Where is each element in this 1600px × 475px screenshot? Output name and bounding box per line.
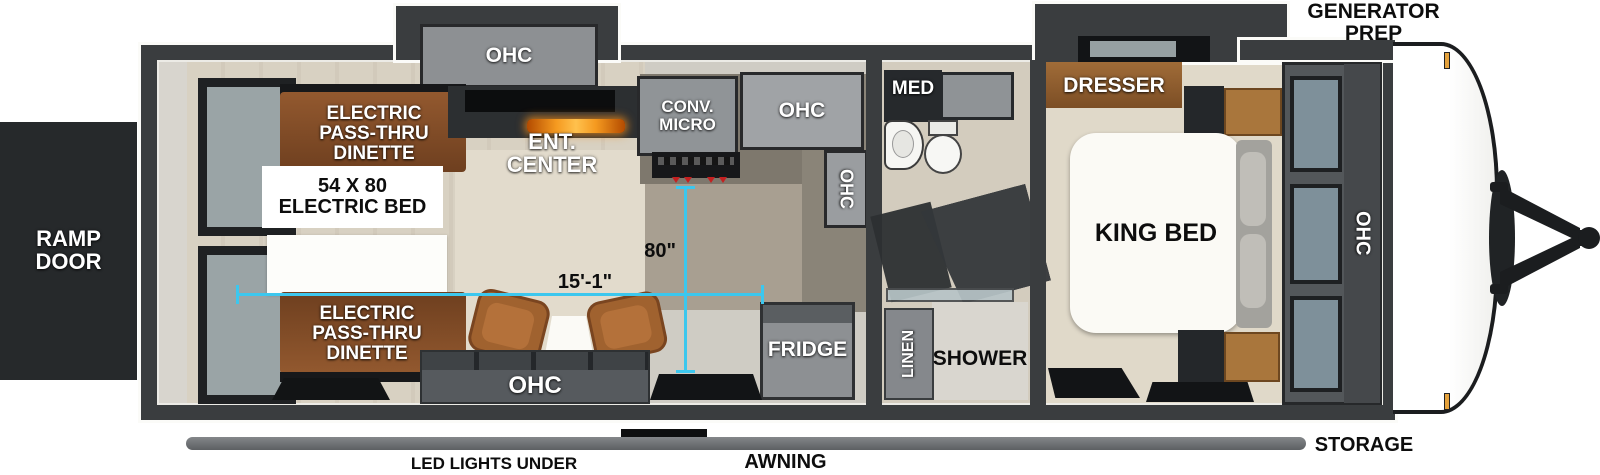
bedroom-mat-right	[1146, 382, 1254, 402]
fridge-label: FRIDGE	[760, 338, 855, 362]
led-lights-label: LED LIGHTS UNDER AWNING	[384, 454, 604, 475]
med-cabinet-front	[940, 72, 1014, 120]
wardrobe-cab-bottom	[1224, 332, 1280, 382]
shower-label: SHOWER	[928, 347, 1032, 371]
dim-width-label: 15'-1"	[528, 271, 642, 294]
kitchen-ohc-corner-label: OHC	[836, 169, 857, 209]
burner-indicator-3	[707, 177, 715, 183]
king-bed-label: KING BED	[1070, 219, 1242, 248]
front-cap	[1393, 42, 1499, 414]
ramp-door-label: RAMP DOOR	[36, 228, 102, 274]
dim-depth-label: 80"	[628, 240, 676, 263]
electric-bed-note: 54 X 80 ELECTRIC BED	[262, 166, 443, 228]
marker-light-top	[1444, 52, 1450, 69]
conv-micro-cabinet: CONV. MICRO	[637, 76, 738, 156]
bedroom-slideout-glass	[1090, 41, 1176, 57]
wardrobe-glass-2	[1290, 184, 1342, 284]
dim-depth-line	[684, 188, 687, 372]
entry-door-mat	[650, 374, 762, 400]
nightstand-bottom	[1178, 330, 1224, 382]
bed-pillow-bottom	[1240, 234, 1266, 308]
dim-depth-cap-bottom	[676, 370, 695, 373]
wardrobe-cab-top	[1224, 88, 1282, 136]
ohc-slideout-label: OHC	[486, 44, 533, 68]
ent-slideout-cabinet: OHC	[420, 24, 598, 88]
dim-width-cap-left	[236, 285, 239, 304]
med-label: MED	[884, 78, 942, 100]
marker-light-bottom	[1444, 393, 1450, 410]
wardrobe-glass-3	[1290, 296, 1342, 392]
electric-bed-label: 54 X 80 ELECTRIC BED	[279, 176, 427, 218]
wardrobe-face: OHC	[1344, 64, 1380, 403]
linen-cabinet: LINEN	[884, 308, 934, 400]
kitchen-ohc-cabinet: OHC	[740, 72, 864, 150]
fridge-top	[763, 305, 852, 323]
wall-bath-bedroom	[1030, 60, 1046, 405]
awning-label: AWNING	[733, 451, 838, 474]
wardrobe-ohc-label: OHC	[1351, 211, 1374, 255]
ent-center-screen	[465, 90, 615, 112]
garage-ohc-cabinet-top	[422, 352, 648, 370]
burner-indicator-2	[684, 177, 692, 183]
bath-sink-bowl	[892, 130, 914, 158]
garage-ohc-label: OHC	[420, 372, 650, 400]
conv-micro-label: CONV. MICRO	[659, 98, 716, 133]
burner-indicator-1	[672, 177, 680, 183]
shower-sill	[886, 288, 1014, 302]
cooktop-grate	[658, 157, 734, 165]
nightstand-top	[1184, 86, 1224, 136]
garage-floor-mat	[272, 378, 390, 400]
kitchen-ohc-label: OHC	[779, 99, 826, 123]
awning-bar	[186, 437, 1306, 450]
bed-pillow-top	[1240, 152, 1266, 226]
dresser-label: DRESSER	[1046, 74, 1182, 98]
hitch-tongue	[1488, 158, 1600, 318]
ramp-door-panel: RAMP DOOR	[0, 122, 137, 380]
storage-label: STORAGE	[1308, 434, 1420, 457]
dim-width-cap-right	[761, 285, 764, 304]
electric-bed-platform	[267, 235, 447, 294]
generator-prep-label: GENERATOR PREP	[1296, 1, 1451, 45]
linen-label: LINEN	[900, 330, 918, 378]
dim-depth-cap-top	[676, 186, 695, 189]
wardrobe-glass-1	[1290, 76, 1342, 172]
kitchen-ohc-corner-cabinet: OHC	[824, 150, 868, 228]
cooktop	[652, 152, 740, 178]
dinette-front-label: ELECTRIC PASS-THRU DINETTE	[290, 104, 458, 163]
burner-indicator-4	[719, 177, 727, 183]
toilet-bowl	[924, 134, 962, 174]
ent-center-label: ENT. CENTER	[488, 131, 616, 177]
rear-wall-face	[159, 62, 187, 403]
floorplan-canvas: RAMP DOOR OHC GENERATOR PREP ELECTRIC PA…	[0, 0, 1600, 475]
